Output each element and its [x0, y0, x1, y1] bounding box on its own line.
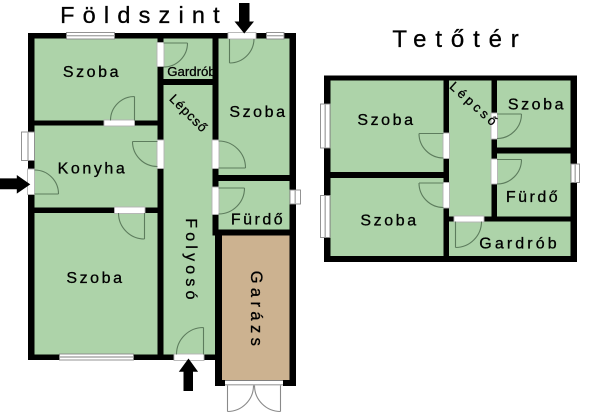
svg-text:Fürdő: Fürdő — [506, 189, 560, 206]
svg-text:Földszint: Földszint — [60, 2, 228, 28]
svg-text:Tetőtér: Tetőtér — [392, 26, 527, 53]
svg-text:Szoba: Szoba — [508, 97, 566, 114]
svg-text:Szoba: Szoba — [63, 64, 121, 81]
svg-text:Szoba: Szoba — [360, 213, 418, 230]
svg-text:Szoba: Szoba — [229, 104, 287, 121]
svg-text:Folyosó: Folyosó — [182, 218, 199, 303]
svg-text:Szoba: Szoba — [66, 270, 124, 287]
svg-text:Gardrób: Gardrób — [167, 64, 215, 79]
svg-text:Garázs: Garázs — [247, 271, 265, 351]
svg-text:Konyha: Konyha — [58, 161, 128, 178]
svg-text:Szoba: Szoba — [357, 112, 415, 129]
svg-text:Fürdő: Fürdő — [231, 212, 285, 229]
svg-text:Gardrób: Gardrób — [479, 236, 559, 253]
